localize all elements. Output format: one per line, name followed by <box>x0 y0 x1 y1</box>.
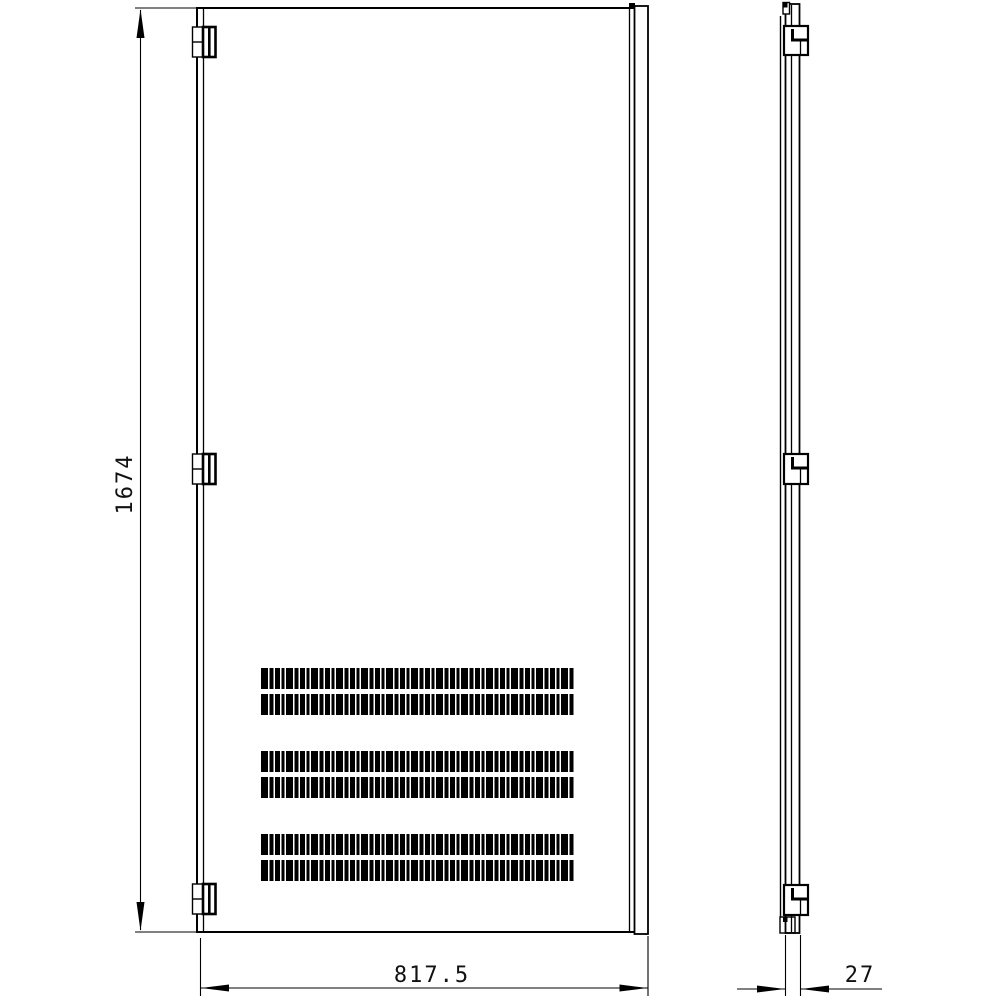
height-dimension-label: 1674 <box>113 454 138 515</box>
vent-slot-row <box>260 834 575 855</box>
vent-slot-row <box>260 777 575 798</box>
vent-slot-row <box>260 694 575 715</box>
dim-arrow-inward-right <box>757 986 785 993</box>
dim-arrow-up <box>137 9 145 38</box>
thickness-dimension-label: 27 <box>845 963 876 988</box>
vent-slot-row <box>260 860 575 881</box>
cad-drawing: 1674 817.5 27 <box>0 0 1000 1000</box>
width-dimension: 817.5 <box>201 936 649 996</box>
hinge-front-top <box>193 27 216 57</box>
side-top-cap <box>783 3 790 15</box>
dim-arrow-right <box>620 985 648 992</box>
vent-slot-row <box>260 668 575 689</box>
hinge-side-middle <box>784 454 808 484</box>
dim-arrow-inward-left <box>801 986 829 993</box>
front-view <box>193 3 649 934</box>
hinge-front-bottom <box>193 884 216 914</box>
hinge-front-middle <box>193 454 216 484</box>
vent-slot-row <box>260 751 575 772</box>
width-dimension-label: 817.5 <box>394 963 470 988</box>
dim-arrow-down <box>137 902 145 931</box>
door-edge-strip <box>635 6 649 934</box>
height-dimension: 1674 <box>113 8 196 932</box>
hinge-side-top <box>784 26 808 55</box>
side-view <box>780 3 808 934</box>
dim-arrow-left <box>201 985 229 992</box>
hinge-side-bottom <box>784 885 808 915</box>
technical-drawing-canvas: 1674 817.5 27 <box>0 0 1000 1000</box>
edge-strip-top-tab <box>629 3 635 8</box>
thickness-dimension: 27 <box>737 935 882 996</box>
